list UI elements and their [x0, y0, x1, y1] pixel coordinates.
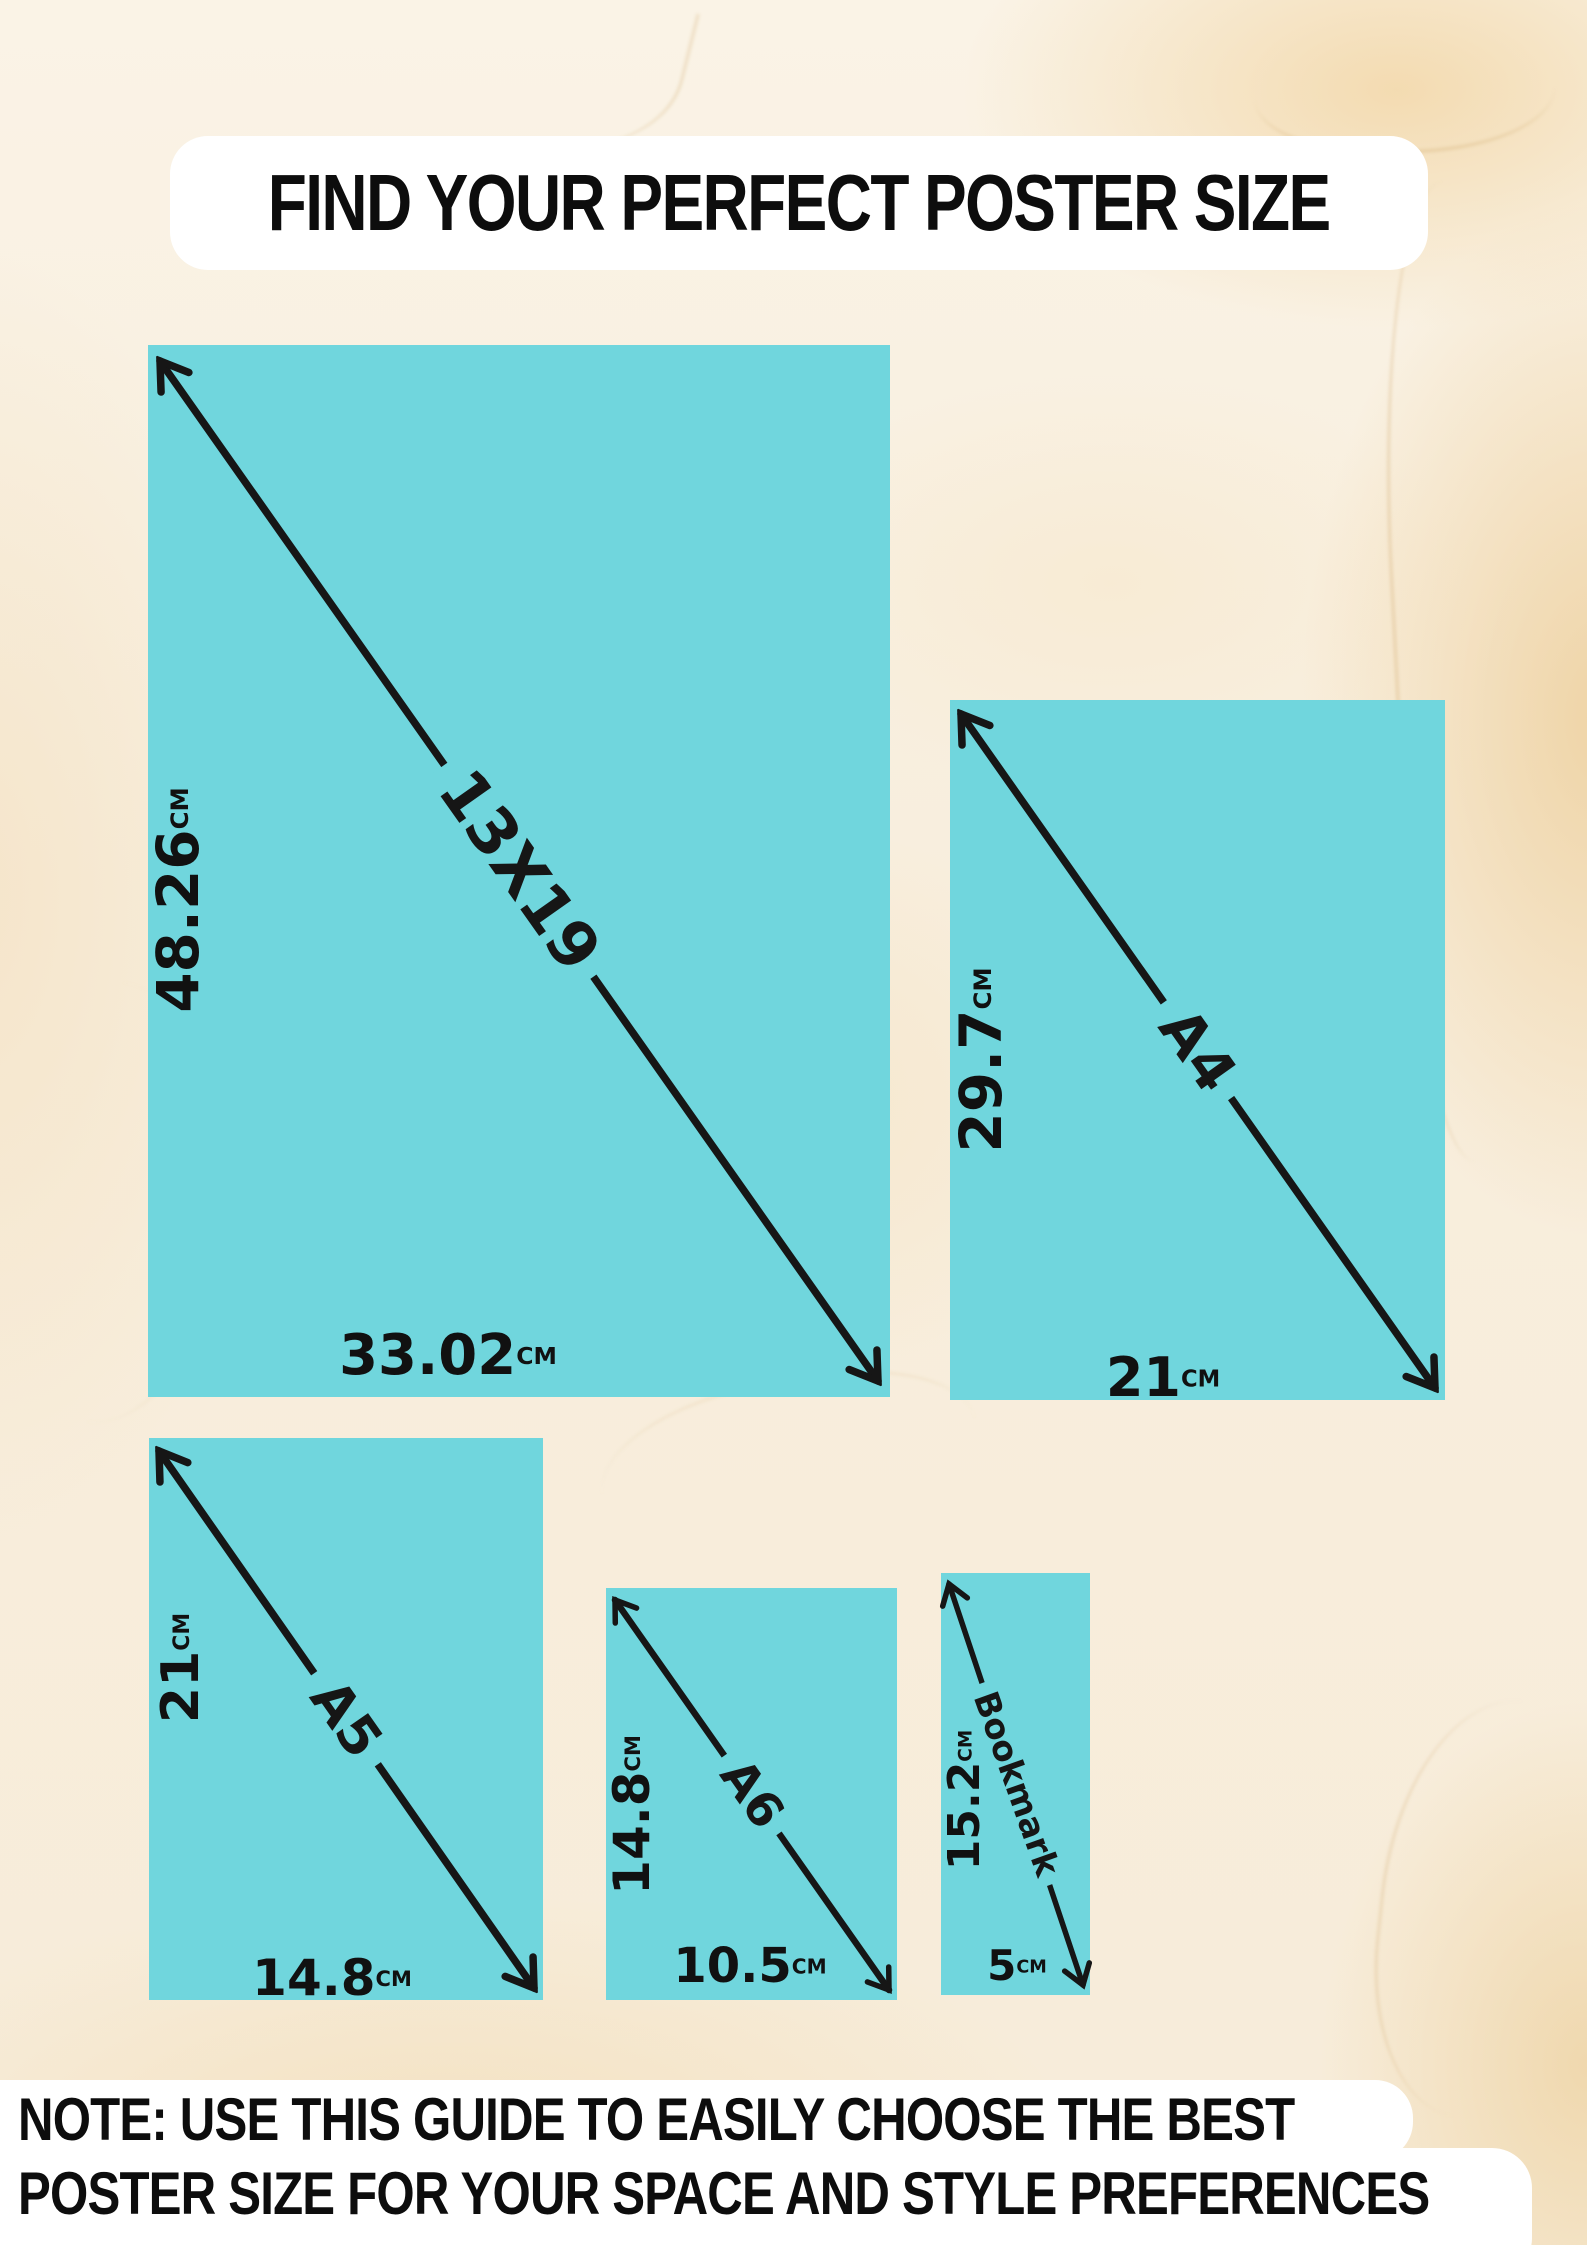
height-dimension: 48.26CM [149, 787, 207, 1013]
height-dimension: 21CM [155, 1613, 207, 1723]
height-unit: CM [165, 787, 194, 829]
width-value: 5 [987, 1941, 1016, 1990]
width-value: 10.5 [673, 1938, 791, 1994]
height-dimension: 15.2CM [943, 1730, 987, 1871]
title-banner: FIND YOUR PERFECT POSTER SIZE [170, 136, 1428, 270]
width-dimension: 5CM [987, 1945, 1047, 1987]
width-unit: CM [792, 1955, 827, 1979]
width-value: 21 [1106, 1346, 1181, 1409]
marble-vein [1359, 1688, 1587, 2131]
width-unit: CM [516, 1342, 557, 1370]
height-unit: CM [955, 1730, 976, 1762]
width-dimension: 21CM [1106, 1351, 1220, 1405]
poster-a5: A5 21CM 14.8CM [149, 1438, 543, 2000]
poster-13x19: 13X19 48.26CM 33.02CM [148, 345, 890, 1397]
note-text-line1: NOTE: USE THIS GUIDE TO EASILY CHOOSE TH… [18, 2090, 1294, 2150]
page-title: FIND YOUR PERFECT POSTER SIZE [268, 157, 1330, 249]
width-unit: CM [1181, 1366, 1220, 1392]
poster-size-guide: FIND YOUR PERFECT POSTER SIZE 13X19 48.2… [0, 0, 1587, 2245]
note-text-line2: POSTER SIZE FOR YOUR SPACE AND STYLE PRE… [18, 2164, 1429, 2224]
height-value: 29.7 [947, 1010, 1015, 1153]
width-value: 14.8 [252, 1949, 375, 2007]
width-unit: CM [376, 1967, 412, 1991]
height-value: 21 [151, 1651, 211, 1723]
note-banner-line2: POSTER SIZE FOR YOUR SPACE AND STYLE PRE… [0, 2148, 1532, 2245]
poster-a4: A4 29.7CM 21CM [950, 700, 1445, 1400]
height-unit: CM [621, 1735, 645, 1771]
height-value: 14.8 [603, 1771, 661, 1894]
width-unit: CM [1016, 1958, 1046, 1978]
height-value: 15.2 [939, 1762, 990, 1871]
poster-a6: A6 14.8CM 10.5CM [606, 1588, 897, 2000]
width-dimension: 14.8CM [252, 1953, 412, 2003]
width-dimension: 33.02CM [339, 1328, 557, 1384]
height-value: 48.26 [144, 829, 212, 1012]
width-value: 33.02 [339, 1323, 516, 1388]
height-dimension: 29.7CM [952, 967, 1010, 1152]
width-dimension: 10.5CM [673, 1942, 826, 1990]
marble-vein [1255, 20, 1555, 153]
poster-bookmark: Bookmark 15.2CM 5CM [941, 1573, 1090, 1995]
height-unit: CM [968, 967, 997, 1009]
height-unit: CM [170, 1613, 195, 1651]
height-dimension: 14.8CM [607, 1735, 657, 1895]
